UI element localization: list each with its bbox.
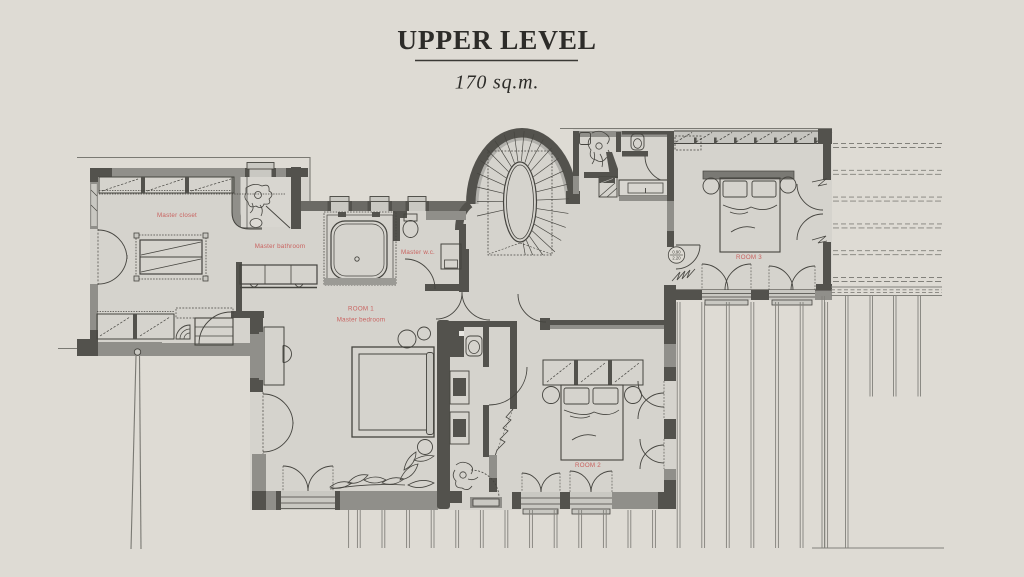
- svg-text:ROOM 3: ROOM 3: [736, 254, 762, 261]
- svg-text:ROOM 1: ROOM 1: [348, 306, 374, 313]
- svg-text:UPPER LEVEL: UPPER LEVEL: [397, 24, 596, 55]
- svg-text:Master bedroom: Master bedroom: [337, 317, 386, 324]
- svg-text:170 sq.m.: 170 sq.m.: [455, 72, 539, 94]
- svg-text:0.90: 0.90: [672, 249, 681, 254]
- svg-text:ROOM 2: ROOM 2: [575, 462, 601, 469]
- svg-text:Master bathroom: Master bathroom: [255, 243, 306, 250]
- svg-text:2.20: 2.20: [672, 255, 681, 260]
- svg-text:Master w.c.: Master w.c.: [401, 249, 435, 256]
- svg-text:Master closet: Master closet: [157, 212, 197, 219]
